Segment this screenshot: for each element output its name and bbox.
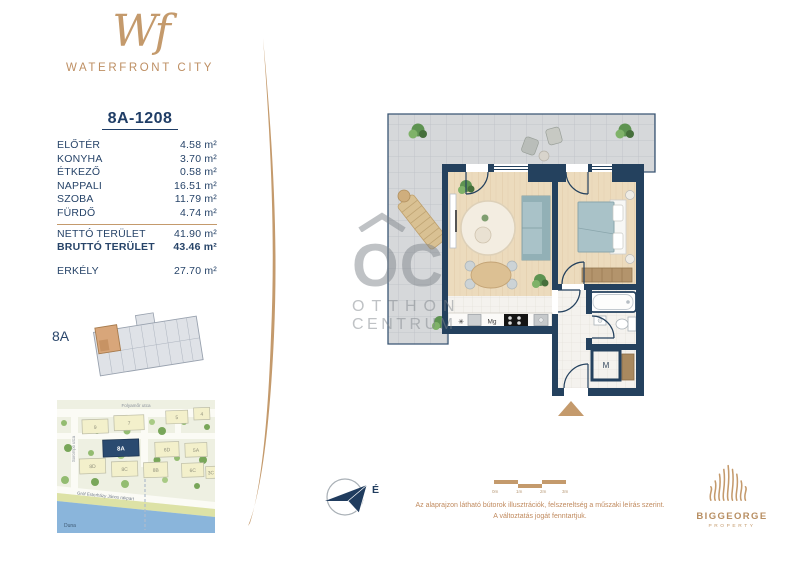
room-area: 11.79 m² [175, 193, 217, 207]
table-row-netto: NETTÓ TERÜLET41.90 m² [57, 228, 217, 242]
map-building-label: 9 [94, 425, 97, 431]
map-building-label: 6D [164, 447, 171, 453]
watermark: OC OTTHON CENTRUM [352, 212, 502, 334]
brand-logo-monogram: Wf [55, 10, 225, 54]
sofa [522, 196, 550, 260]
table-row: KONYHA3.70 m² [57, 153, 217, 167]
map-building-label: 8C [121, 467, 128, 473]
balcony-area: 27.70 m² [174, 265, 217, 279]
map-building-label: 8D [89, 464, 96, 470]
room-area: 4.58 m² [180, 139, 217, 153]
room-area: 3.70 m² [180, 153, 217, 167]
flyer-page: Wf WATERFRONT CITY 8A-1208 ELŐTÉR4.58 m²… [0, 0, 800, 565]
table-row-balcony: ERKÉLY27.70 m² [57, 265, 217, 279]
street-label-left: Sorompó utca [71, 435, 76, 462]
entry-arrow [558, 401, 584, 416]
table-row: ELŐTÉR4.58 m² [57, 139, 217, 153]
room-name: NAPPALI [57, 180, 102, 194]
table-row: ÉTKEZŐ0.58 m² [57, 166, 217, 180]
scale-tick: 1m [516, 489, 523, 494]
nightstand [626, 255, 635, 264]
wardrobe [582, 268, 632, 282]
north-label: É [372, 483, 379, 496]
total-name: BRUTTÓ TERÜLET [57, 241, 155, 255]
compass: É [318, 470, 388, 524]
developer-subtitle: PROPERTY [686, 524, 778, 529]
room-name: SZOBA [57, 193, 94, 207]
nightstand [626, 191, 635, 200]
room-name: ÉTKEZŐ [57, 166, 100, 180]
scale-tick: 3m [562, 489, 568, 494]
scale-bar: 0m 1m 2m 3m [492, 477, 568, 495]
table-row: FÜRDŐ4.74 m² [57, 207, 217, 221]
balcony-name: ERKÉLY [57, 265, 99, 279]
room-name: ELŐTÉR [57, 139, 100, 153]
room-name: KONYHA [57, 153, 103, 167]
room-area: 4.74 m² [180, 207, 217, 221]
river-label: Duna [64, 523, 76, 529]
unit-id: 8A-1208 [102, 110, 179, 130]
developer-mark-icon [686, 456, 778, 506]
disclaimer: Az alaprajzon látható bútorok illusztrác… [380, 500, 700, 522]
total-area: 43.46 m² [173, 241, 217, 255]
hall-cabinet [622, 354, 634, 380]
total-area: 41.90 m² [174, 228, 217, 242]
table-row: SZOBA11.79 m² [57, 193, 217, 207]
cooktop [504, 314, 528, 326]
decorative-curve [242, 36, 286, 530]
total-name: NETTÓ TERÜLET [57, 228, 146, 242]
map-building-label: 5 [175, 415, 178, 421]
developer-name: BIGGEORGE [686, 511, 778, 522]
unit-title: 8A-1208 [55, 110, 225, 128]
disclaimer-line2: A változtatás jogát fenntartjuk. [380, 511, 700, 522]
bed [578, 200, 626, 254]
table-row-brutto: BRUTTÓ TERÜLET43.46 m² [57, 241, 217, 255]
room-table: ELŐTÉR4.58 m² KONYHA3.70 m² ÉTKEZŐ0.58 m… [57, 139, 217, 278]
map-building-label: 5A [193, 448, 200, 454]
table-divider [57, 224, 217, 225]
watermark-roof-icon [352, 212, 412, 232]
room-name: FÜRDŐ [57, 207, 95, 221]
table-row: NAPPALI16.51 m² [57, 180, 217, 194]
scale-tick: 0m [492, 489, 499, 494]
map-building-label: 7 [128, 421, 131, 427]
developer-logo: BIGGEORGE PROPERTY [686, 456, 778, 529]
watermark-monogram: OC [352, 237, 502, 294]
brand-block: Wf WATERFRONT CITY [55, 10, 225, 74]
watermark-line2: CENTRUM [352, 316, 502, 334]
keyplan-label: 8A [52, 328, 69, 344]
watermark-line1: OTTHON [352, 298, 502, 316]
room-area: 16.51 m² [174, 180, 217, 194]
bathtub [590, 292, 636, 312]
map-building-label-8a: 8A [117, 446, 126, 452]
terrace-side-table [398, 190, 410, 202]
scale-tick: 2m [540, 489, 547, 494]
map-building-label: 8B [153, 468, 160, 474]
disclaimer-line1: Az alaprajzon látható bútorok illusztrác… [380, 500, 700, 511]
brand-name: WATERFRONT CITY [55, 62, 225, 74]
site-map: 9 7 5 4 6D 5A 8D 8C 8B 6C 3C 8A Folyamőr… [57, 400, 215, 533]
street-label-top: Folyamőr utca [121, 403, 151, 408]
map-building-label: 6C [189, 468, 196, 474]
mechanical-closet-label: M [603, 361, 610, 370]
map-building-label: 4 [200, 412, 203, 418]
map-building-label: 3C [208, 470, 215, 476]
building-keyplan [78, 296, 218, 392]
room-area: 0.58 m² [180, 166, 217, 180]
